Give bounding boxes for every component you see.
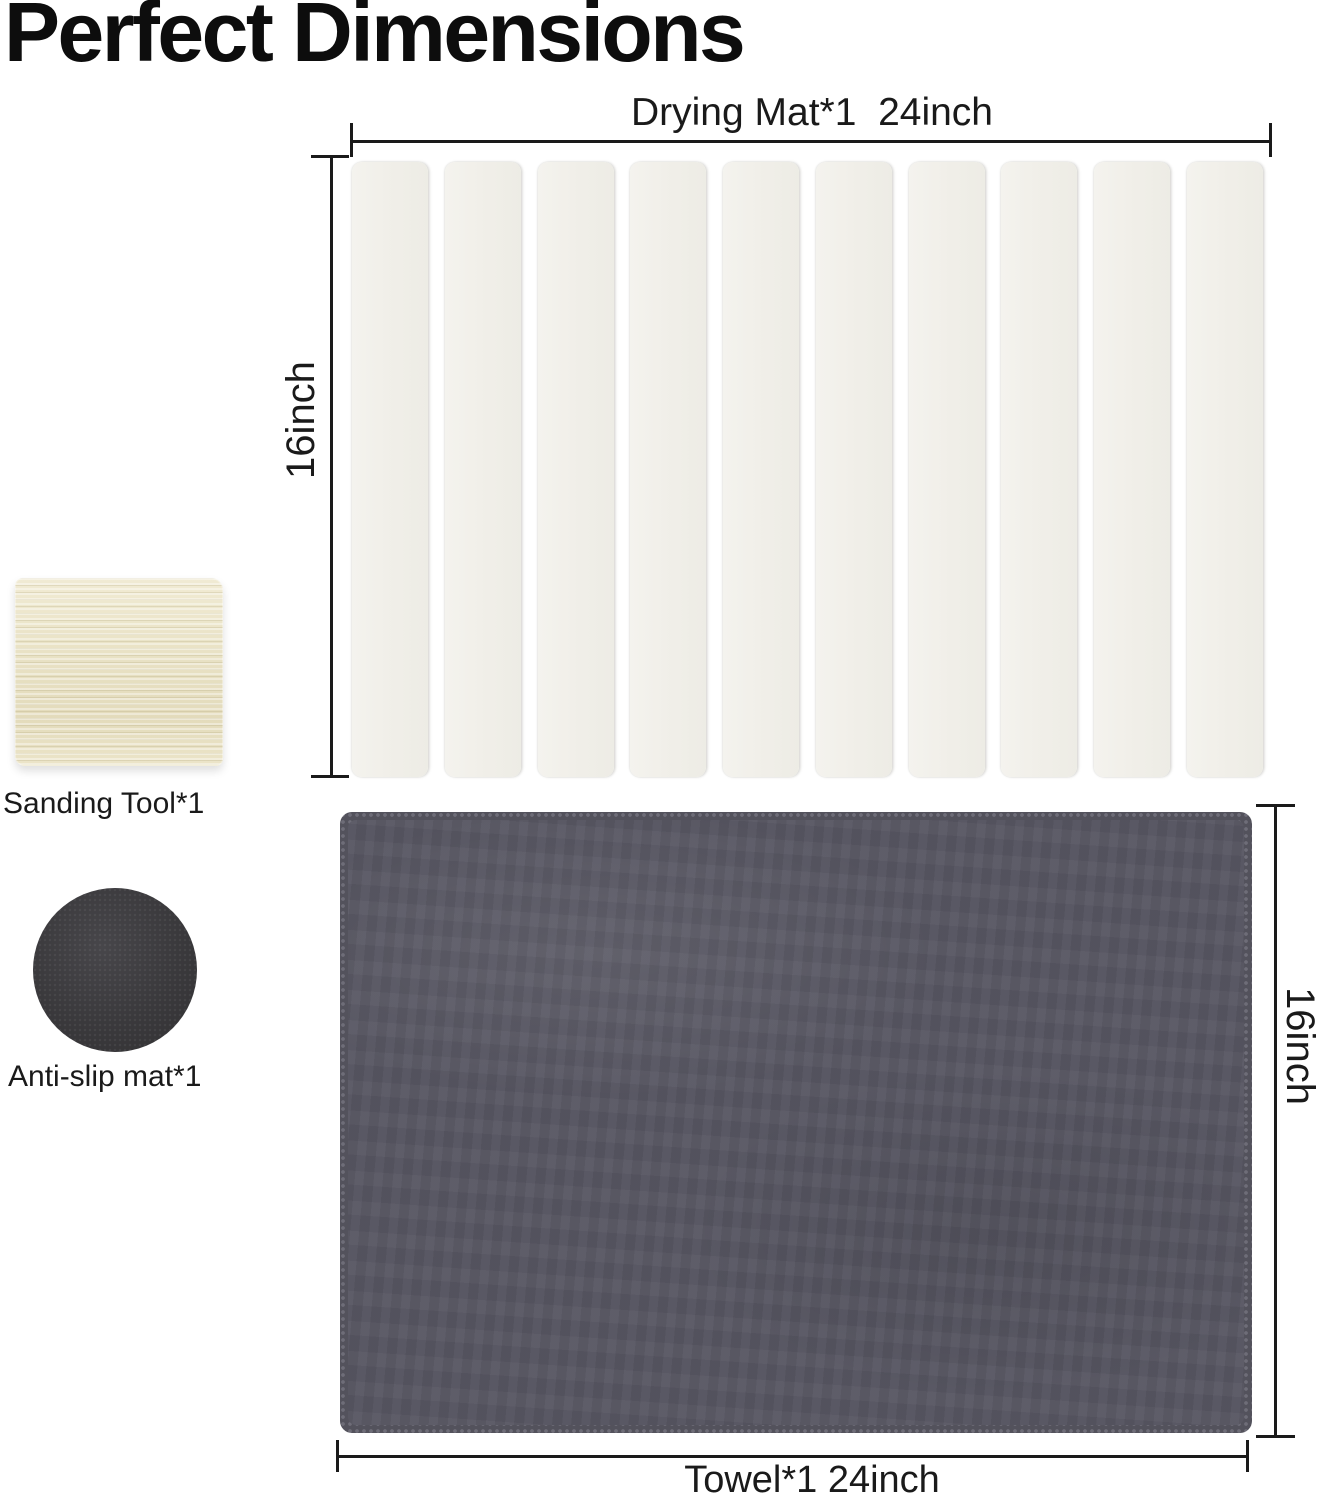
drying-mat-image [352, 162, 1263, 777]
drying-mat-height-dimension-line [330, 157, 333, 778]
sanding-tool-image [15, 578, 223, 766]
anti-slip-mat-image [33, 888, 197, 1052]
drying-mat-slat [445, 162, 521, 777]
towel-height-label: 16inch [1278, 946, 1319, 1146]
drying-mat-slat [1094, 162, 1170, 777]
towel-dimension-label: Towel*1 24inch [352, 1461, 1272, 1499]
drying-mat-slat [1001, 162, 1077, 777]
dimension-cap-top [311, 155, 349, 158]
dimension-tick-bottom-left [336, 1440, 339, 1472]
drying-mat-slat [723, 162, 799, 777]
dimension-cap-bottom-right [1256, 1435, 1295, 1438]
dimension-cap-top-right [1256, 804, 1295, 807]
dimension-cap-bottom [311, 775, 349, 778]
page-title: Perfect Dimensions [4, 0, 743, 74]
drying-mat-slat [630, 162, 706, 777]
sanding-tool-label: Sanding Tool*1 [3, 787, 204, 820]
drying-mat-slat [816, 162, 892, 777]
drying-mat-width-dimension-line [352, 140, 1272, 143]
drying-mat-slat [909, 162, 985, 777]
towel-image [340, 812, 1252, 1433]
drying-mat-height-label: 16inch [279, 320, 323, 520]
towel-height-dimension-line [1274, 806, 1277, 1437]
drying-mat-slat [352, 162, 428, 777]
dimension-tick-left [350, 123, 353, 157]
towel-width-dimension-line [338, 1455, 1249, 1458]
dimension-tick-right [1269, 123, 1272, 157]
anti-slip-mat-label: Anti-slip mat*1 [8, 1060, 201, 1093]
product-dimensions-image: Perfect Dimensions Drying Mat*1 24inch 1… [0, 0, 1319, 1500]
towel-surface [348, 820, 1244, 1425]
drying-mat-slat [1187, 162, 1263, 777]
drying-mat-dimension-label: Drying Mat*1 24inch [352, 93, 1272, 132]
drying-mat-slat [538, 162, 614, 777]
